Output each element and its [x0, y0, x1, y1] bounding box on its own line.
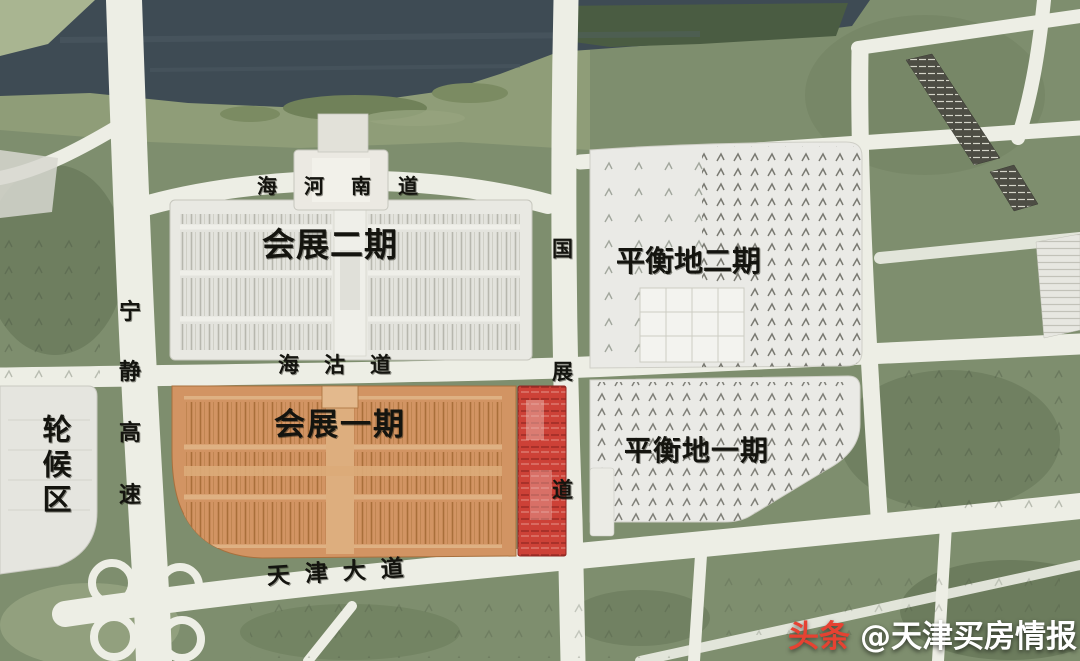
watermark-account: @天津买房情报 [860, 622, 1077, 653]
label-exhibition-phase1: 会展一期 [274, 410, 406, 441]
label-balance-land-phase1: 平衡地一期 [624, 437, 769, 465]
map-canvas [0, 0, 1080, 661]
building-rows-east-edge [1036, 234, 1080, 338]
label-guozhan-road: 国 展 道 [552, 239, 576, 509]
label-ningjing-expressway: 宁 静 高 速 [119, 302, 145, 522]
watermark: 头条 @天津买房情报 [788, 622, 1077, 653]
site-plan-map: 海河南道 会展二期 平衡地二期 海沽道 会展一期 平衡地一期 轮候区 宁 静 高… [0, 0, 1080, 661]
label-waiting-area: 轮候区 [40, 414, 69, 519]
label-haigu-road: 海沽道 [278, 355, 416, 376]
label-exhibition-phase2: 会展二期 [262, 228, 398, 261]
watermark-brand: 头条 [788, 622, 850, 653]
river-pier [318, 114, 368, 152]
label-balance-land-phase2: 平衡地二期 [616, 247, 761, 276]
label-haihe-south-road: 海河南道 [257, 176, 445, 196]
